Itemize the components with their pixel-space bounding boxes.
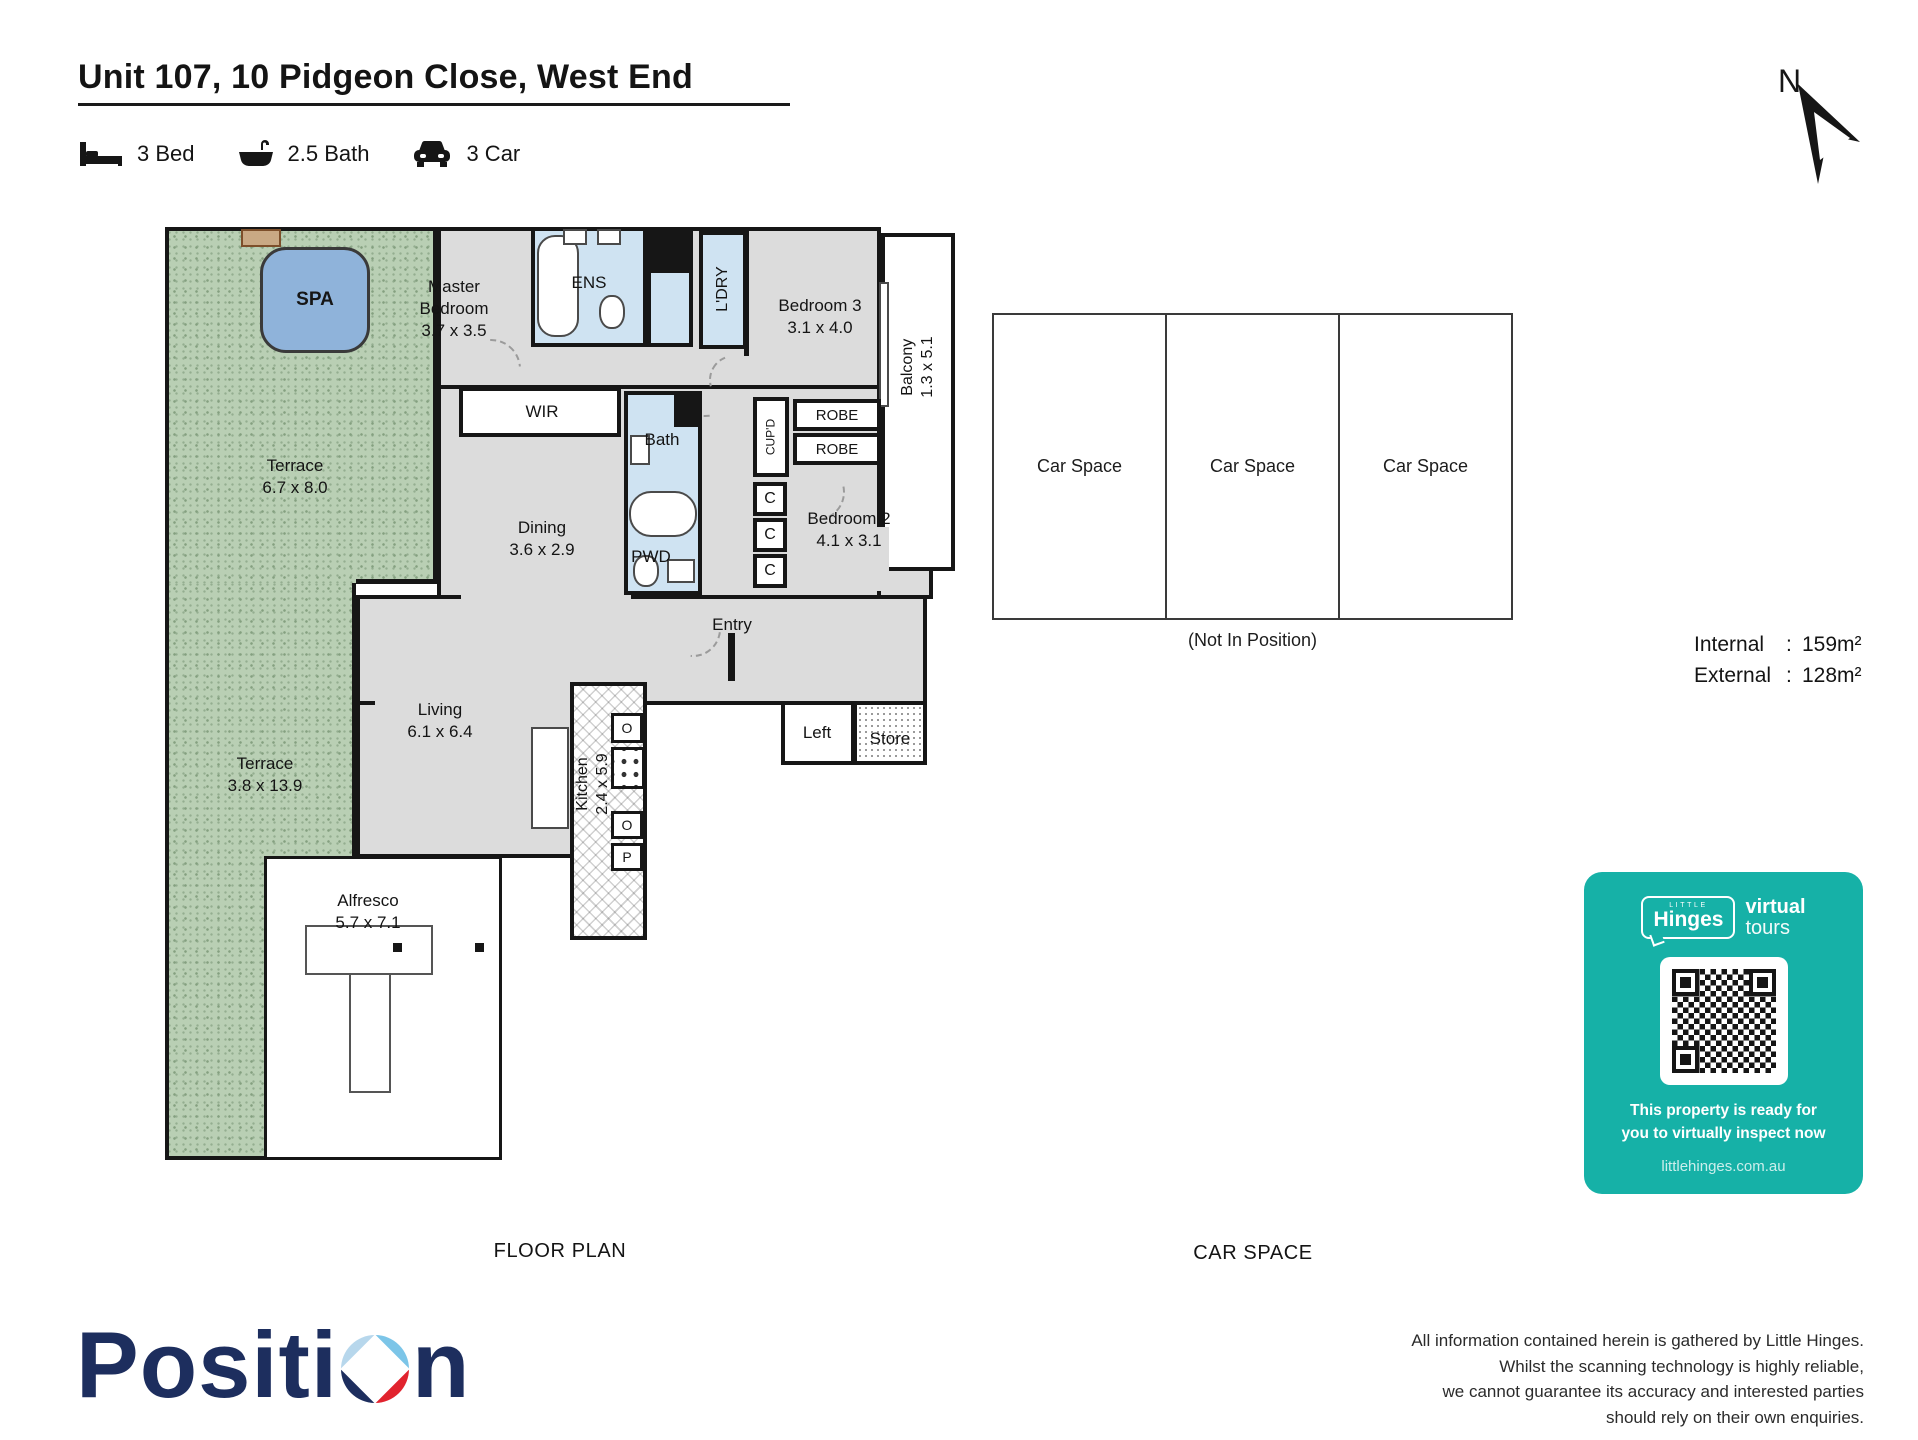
room-dims: 2.4 x 5.9 <box>593 753 613 814</box>
oven-label: O <box>622 720 633 736</box>
feature-car: 3 Car <box>411 139 520 169</box>
robe-cell-bottom: ROBE <box>793 433 881 465</box>
room-label-balcony: Balcony 1.3 x 5.1 <box>898 336 938 397</box>
bathtub <box>629 491 697 537</box>
car-space-1: Car Space <box>994 315 1167 618</box>
room-name: L'DRY <box>713 266 733 311</box>
room-label-master-bedroom: Master Bedroom 3.7 x 3.5 <box>397 276 511 342</box>
car-space-note: (Not In Position) <box>992 630 1513 651</box>
car-space-label: Car Space <box>1383 456 1468 477</box>
balcony-sliding-door <box>879 282 889 407</box>
product-word: virtual <box>1745 897 1805 918</box>
title-underline <box>78 103 790 106</box>
page-title: Unit 107, 10 Pidgeon Close, West End <box>78 58 693 97</box>
open-plan-join <box>461 589 631 603</box>
oven-cell-top: O <box>611 713 643 743</box>
room-dims: 3.8 x 13.9 <box>228 775 303 797</box>
car-space-3: Car Space <box>1340 315 1511 618</box>
disclaimer-line: All information contained herein is gath… <box>1318 1328 1864 1354</box>
room-name: CUP'D <box>764 419 779 455</box>
closet-label: C <box>764 490 776 508</box>
cooktop-cell <box>611 747 645 789</box>
bath-icon <box>237 138 275 170</box>
room-label-terrace-upper: Terrace 6.7 x 8.0 <box>262 455 327 499</box>
qr-code <box>1660 957 1788 1085</box>
product-word: tours <box>1745 918 1805 939</box>
car-space-section-label: CAR SPACE <box>1083 1242 1423 1265</box>
feature-bed: 3 Bed <box>78 139 195 169</box>
spa-label: SPA <box>296 289 334 311</box>
room-dims: 1.3 x 5.1 <box>918 336 938 397</box>
spa-tub: SPA <box>260 247 370 353</box>
qr-finder <box>1672 1046 1699 1073</box>
room-label-wir: WIR <box>525 401 558 423</box>
bbq-fixture <box>241 229 281 247</box>
room-label-entry: Entry <box>712 614 752 636</box>
room-name: Bath <box>645 429 680 451</box>
ensuite-basin <box>597 229 621 245</box>
oven-label: O <box>622 817 633 833</box>
room-label-living: Living 6.1 x 6.4 <box>407 699 472 743</box>
area-label: Internal <box>1694 633 1786 657</box>
room-label-bedroom2: Bedroom 2 4.1 x 3.1 <box>807 508 890 552</box>
room-name: ENS <box>572 272 607 294</box>
room-dims: 3.7 x 3.5 <box>397 320 511 342</box>
room-dims: 6.1 x 6.4 <box>407 721 472 743</box>
feature-bath: 2.5 Bath <box>237 138 370 170</box>
room-name: WIR <box>525 401 558 423</box>
little-hinges-logo: LITTLE Hinges virtual tours <box>1584 896 1863 939</box>
closet-cell-2: C <box>753 518 787 552</box>
floor-plan-section-label: FLOOR PLAN <box>390 1240 730 1263</box>
room-dims: 3.1 x 4.0 <box>778 317 861 339</box>
car-icon <box>411 139 453 169</box>
logo-text: n <box>412 1312 470 1417</box>
position-logo-o-icon <box>341 1335 409 1403</box>
floor-plan-drawing: ROBE ROBE C C C SPA O <box>165 227 955 1160</box>
shower-block <box>651 231 689 273</box>
feature-bath-label: 2.5 Bath <box>288 141 370 167</box>
room-label-pwd: PWD <box>631 546 671 568</box>
hinges-speech-bubble: LITTLE Hinges <box>1641 896 1735 939</box>
area-value: 159m² <box>1802 633 1862 657</box>
room-label-dining: Dining 3.6 x 2.9 <box>509 517 574 561</box>
balcony-area <box>881 233 955 571</box>
wall <box>744 231 749 356</box>
closet-label: C <box>764 562 776 580</box>
entry-door <box>728 633 735 681</box>
room-name: Balcony <box>898 336 918 397</box>
room-label-laundry: L'DRY <box>713 266 733 311</box>
message-line: you to virtually inspect now <box>1584 1123 1863 1145</box>
room-name: PWD <box>631 546 671 568</box>
room-label-bath: Bath <box>645 429 680 451</box>
alfresco-table-stem <box>349 973 391 1093</box>
virtual-tours-wordmark: virtual tours <box>1745 897 1805 939</box>
robe-label: ROBE <box>816 407 859 424</box>
room-name: Store <box>870 728 911 750</box>
room-dims: 4.1 x 3.1 <box>807 530 890 552</box>
logo-text: Positi <box>76 1312 338 1417</box>
room-label-cupboard: CUP'D <box>764 419 779 455</box>
room-name: Bedroom 3 <box>778 295 861 317</box>
room-label-ens: ENS <box>572 272 607 294</box>
position-logo: Positin <box>76 1318 470 1412</box>
feature-car-label: 3 Car <box>466 141 520 167</box>
bed-icon <box>78 139 124 169</box>
wall <box>356 579 437 584</box>
floorplan-page: Unit 107, 10 Pidgeon Close, West End 3 B… <box>0 0 1918 1440</box>
svg-text:N: N <box>1778 63 1801 99</box>
disclaimer-text: All information contained herein is gath… <box>1318 1328 1864 1430</box>
room-name: Terrace <box>228 753 303 775</box>
virtual-tour-message: This property is ready for you to virtua… <box>1584 1100 1863 1145</box>
brand-text: Hinges <box>1653 909 1723 931</box>
area-colon: : <box>1786 633 1802 657</box>
qr-finder <box>1749 969 1776 996</box>
oven-cell-bottom: O <box>611 811 643 839</box>
pantry-cell: P <box>611 843 643 871</box>
internal-area-row: Internal : 159m² <box>1694 633 1862 657</box>
external-area-row: External : 128m² <box>1694 664 1862 688</box>
disclaimer-line: should rely on their own enquiries. <box>1318 1405 1864 1431</box>
robe-label: ROBE <box>816 441 859 458</box>
room-dims: 6.7 x 8.0 <box>262 477 327 499</box>
area-value: 128m² <box>1802 664 1862 688</box>
qr-finder <box>1672 969 1699 996</box>
room-label-bedroom3: Bedroom 3 3.1 x 4.0 <box>778 295 861 339</box>
room-name: Terrace <box>262 455 327 477</box>
room-name: Alfresco <box>335 890 400 912</box>
area-summary: Internal : 159m² External : 128m² <box>1694 633 1862 695</box>
disclaimer-line: we cannot guarantee its accuracy and int… <box>1318 1379 1864 1405</box>
car-space-label: Car Space <box>1037 456 1122 477</box>
room-name: Dining <box>509 517 574 539</box>
pwd-basin <box>667 559 695 583</box>
message-line: This property is ready for <box>1584 1100 1863 1122</box>
room-dims: 5.7 x 7.1 <box>335 912 400 934</box>
room-label-store: Store <box>870 728 911 750</box>
pantry-label: P <box>622 849 631 865</box>
room-name: Living <box>407 699 472 721</box>
post-marker <box>393 943 402 952</box>
virtual-tour-website: littlehinges.com.au <box>1584 1158 1863 1175</box>
car-space-2: Car Space <box>1167 315 1340 618</box>
closet-label: C <box>764 526 776 544</box>
feature-bed-label: 3 Bed <box>137 141 195 167</box>
room-label-terrace-lower: Terrace 3.8 x 13.9 <box>228 753 303 797</box>
post-marker <box>475 943 484 952</box>
ensuite-toilet <box>599 295 625 329</box>
area-colon: : <box>1786 664 1802 688</box>
room-label-alfresco: Alfresco 5.7 x 7.1 <box>335 890 400 934</box>
room-name: Entry <box>712 614 752 636</box>
room-name: Kitchen <box>573 753 593 814</box>
room-name: Master Bedroom <box>397 276 511 320</box>
bath-niche-block <box>674 395 698 427</box>
room-label-kitchen: Kitchen 2.4 x 5.9 <box>573 753 613 814</box>
robe-cell-top: ROBE <box>793 399 881 431</box>
room-dims: 3.6 x 2.9 <box>509 539 574 561</box>
closet-cell-3: C <box>753 554 787 588</box>
virtual-tour-card: LITTLE Hinges virtual tours This propert… <box>1584 872 1863 1194</box>
kitchen-island <box>531 727 569 829</box>
room-label-left: Left <box>803 722 831 744</box>
car-space-diagram: Car Space Car Space Car Space <box>992 313 1513 620</box>
disclaimer-line: Whilst the scanning technology is highly… <box>1318 1354 1864 1380</box>
ensuite-basin <box>563 229 587 245</box>
north-arrow-icon: N <box>1768 56 1878 196</box>
car-space-label: Car Space <box>1210 456 1295 477</box>
room-name: Bedroom 2 <box>807 508 890 530</box>
room-name: Left <box>803 722 831 744</box>
closet-cell-1: C <box>753 482 787 516</box>
feature-summary: 3 Bed 2.5 Bath 3 Car <box>78 138 520 170</box>
area-label: External <box>1694 664 1786 688</box>
